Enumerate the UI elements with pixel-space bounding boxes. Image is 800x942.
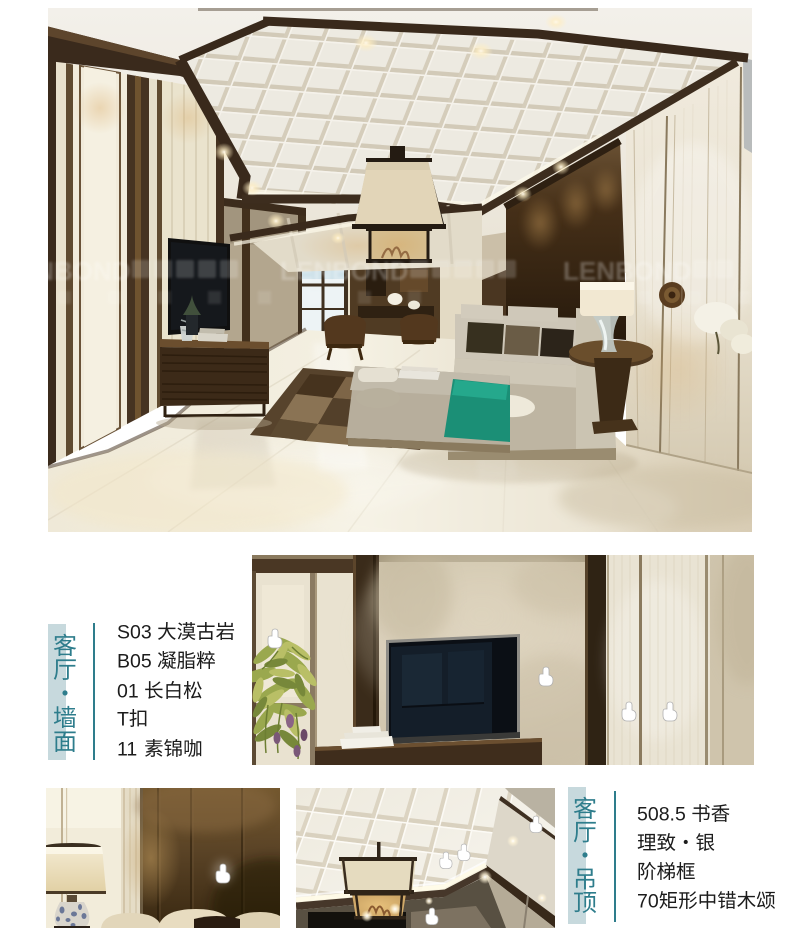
- svg-text:11: 11: [117, 738, 137, 760]
- svg-text:01: 01: [117, 680, 139, 702]
- svg-text:LENBOND: LENBOND: [280, 256, 409, 286]
- svg-text:B05: B05: [117, 650, 152, 672]
- svg-text:70: 70: [637, 890, 659, 912]
- svg-text:LENBOND: LENBOND: [48, 256, 131, 286]
- svg-text:508.5: 508.5: [637, 803, 686, 825]
- svg-text:S03: S03: [117, 621, 152, 643]
- svg-text:LENBOND: LENBOND: [563, 256, 692, 286]
- svg-text:T: T: [117, 708, 129, 730]
